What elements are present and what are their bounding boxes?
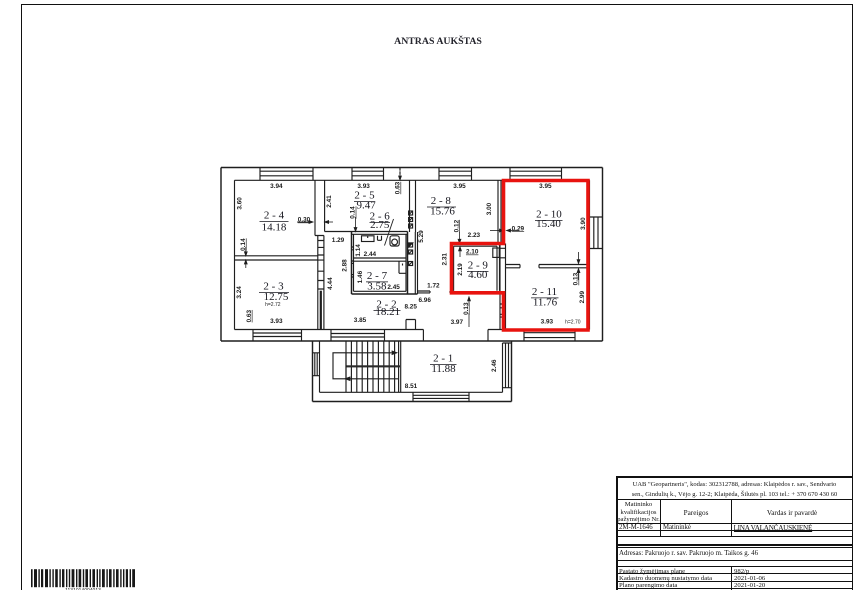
svg-text:3.93: 3.93 <box>270 318 283 325</box>
svg-text:2.46: 2.46 <box>491 359 498 372</box>
svg-text:0.29: 0.29 <box>512 225 525 232</box>
svg-text:2 - 4: 2 - 4 <box>264 210 285 222</box>
svg-text:2.44: 2.44 <box>364 251 377 258</box>
svg-text:3.97: 3.97 <box>451 319 464 326</box>
svg-text:2.41: 2.41 <box>326 195 333 208</box>
svg-text:3.60: 3.60 <box>236 197 243 210</box>
svg-text:3.95: 3.95 <box>539 183 552 190</box>
svg-text:2.75: 2.75 <box>370 219 390 231</box>
svg-text:5.29: 5.29 <box>418 230 425 243</box>
svg-text:2.31: 2.31 <box>442 253 449 266</box>
svg-text:0.63: 0.63 <box>246 310 253 323</box>
svg-text:3.24: 3.24 <box>236 286 243 299</box>
svg-text:2.19: 2.19 <box>457 263 464 276</box>
svg-text:0.13: 0.13 <box>573 272 580 285</box>
svg-text:15.76: 15.76 <box>430 205 455 217</box>
svg-text:2.45: 2.45 <box>387 284 400 291</box>
svg-text:2.23: 2.23 <box>468 232 481 239</box>
svg-text:3.00: 3.00 <box>486 202 493 215</box>
svg-text:3.90: 3.90 <box>580 217 587 230</box>
svg-text:0.63: 0.63 <box>395 181 402 194</box>
svg-text:11.88: 11.88 <box>431 363 456 375</box>
svg-text:0.14: 0.14 <box>240 238 247 251</box>
svg-text:3.93: 3.93 <box>541 319 554 326</box>
svg-text:h=2.72: h=2.72 <box>265 302 281 308</box>
svg-text:8.25: 8.25 <box>404 304 417 311</box>
svg-text:3.85: 3.85 <box>354 317 367 324</box>
svg-text:2.10: 2.10 <box>466 249 479 256</box>
svg-text:15.40: 15.40 <box>536 218 561 230</box>
svg-text:0.30: 0.30 <box>298 217 311 224</box>
svg-text:4.60: 4.60 <box>468 269 488 281</box>
svg-text:12.75: 12.75 <box>264 291 289 303</box>
svg-text:4.44: 4.44 <box>327 277 334 290</box>
svg-text:11.76: 11.76 <box>533 297 558 309</box>
svg-text:3.94: 3.94 <box>270 183 283 190</box>
svg-text:1.72: 1.72 <box>427 282 440 289</box>
svg-text:1.29: 1.29 <box>332 237 345 244</box>
svg-text:3.95: 3.95 <box>453 183 466 190</box>
svg-text:2.99: 2.99 <box>579 291 586 304</box>
svg-text:0.12: 0.12 <box>453 219 460 232</box>
svg-text:h=2.70: h=2.70 <box>565 319 581 325</box>
svg-text:1.46: 1.46 <box>357 270 364 283</box>
svg-text:3.58: 3.58 <box>367 281 387 293</box>
svg-text:1.14: 1.14 <box>355 244 362 257</box>
svg-text:6.96: 6.96 <box>418 297 431 304</box>
svg-text:14.18: 14.18 <box>262 222 287 234</box>
svg-text:0.13: 0.13 <box>463 302 470 315</box>
svg-text:2.88: 2.88 <box>342 259 349 272</box>
svg-text:18.21: 18.21 <box>375 306 400 318</box>
svg-text:8.51: 8.51 <box>405 383 418 390</box>
